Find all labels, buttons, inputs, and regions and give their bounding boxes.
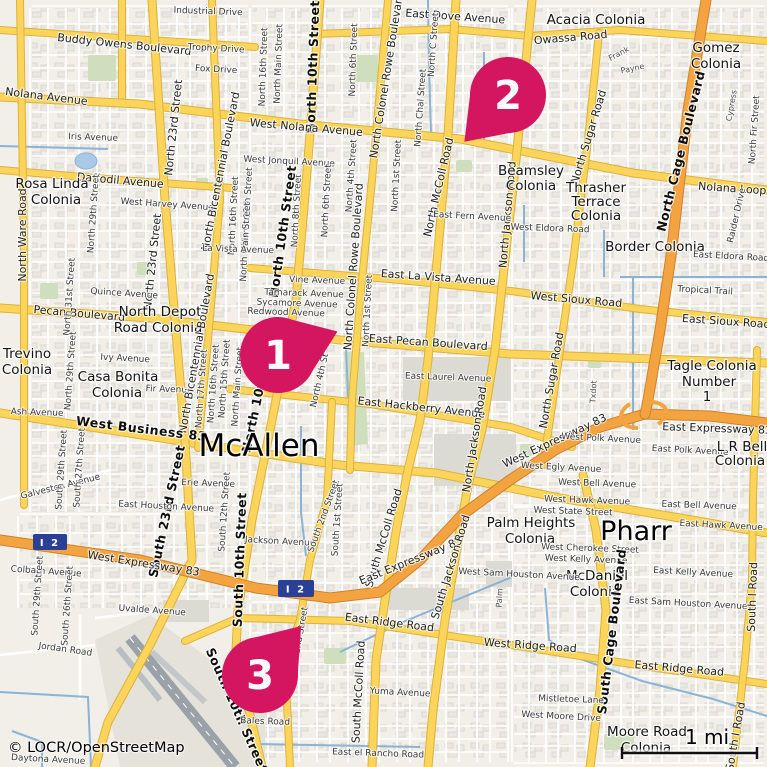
map-label: Bales Road (240, 716, 290, 728)
map-label: Colonia (506, 178, 556, 194)
map-label: McAllen (199, 428, 320, 464)
map-label: Moore Road (607, 724, 687, 740)
map-label: Acacia Colonia (547, 12, 646, 28)
interstate-2-shield: I 2 (33, 534, 67, 550)
map-attribution: © LOCR/OpenStreetMap (8, 740, 185, 756)
map-label: Road Colonia (114, 320, 202, 336)
map-label: Trevino (2, 346, 51, 362)
map-label: Colonia (715, 453, 765, 469)
map-viewport: I 2 I 2 Industrial DriveBuddy Owens Boul… (0, 0, 767, 767)
map-label: 1 (703, 389, 712, 405)
map-label: Ash Avenue (10, 407, 64, 419)
map-label: Colonia (92, 385, 142, 401)
marker-1-number: 1 (264, 333, 292, 379)
map-label: Colonia (31, 192, 81, 208)
map-label: Number (682, 374, 737, 390)
map-label: South I Road (745, 562, 760, 632)
interstate-2-shield: I 2 (278, 580, 314, 597)
scale-label: 1 mi (685, 725, 729, 749)
map-label: Tagle Colonia (666, 358, 756, 374)
map-label: Palm (495, 588, 505, 608)
map-label: Gomez (692, 40, 739, 56)
map-label: Beamsley (498, 163, 564, 179)
svg-text:I 2: I 2 (286, 585, 306, 596)
map-label: North Ware Road (16, 188, 29, 281)
svg-text:I 2: I 2 (40, 538, 60, 549)
map-label: Casa Bonita (78, 369, 159, 385)
map-label: Border Colonia (605, 239, 705, 255)
map-label: Palm Heights (487, 515, 576, 531)
map-label: Iris Avenue (68, 132, 119, 144)
map-label: Txdot (588, 380, 598, 404)
map-label: Colonia (571, 208, 621, 224)
marker-2-number: 2 (494, 73, 522, 119)
map-label: North Depot (119, 304, 202, 320)
map-label: Colonia (2, 362, 52, 378)
map-canvas[interactable]: I 2 I 2 Industrial DriveBuddy Owens Boul… (0, 0, 767, 767)
map-label: Pharr (600, 516, 673, 547)
map-label: Vine Avenue (289, 275, 346, 287)
map-label: Colonia (691, 56, 741, 72)
marker-3-number: 3 (246, 653, 274, 699)
